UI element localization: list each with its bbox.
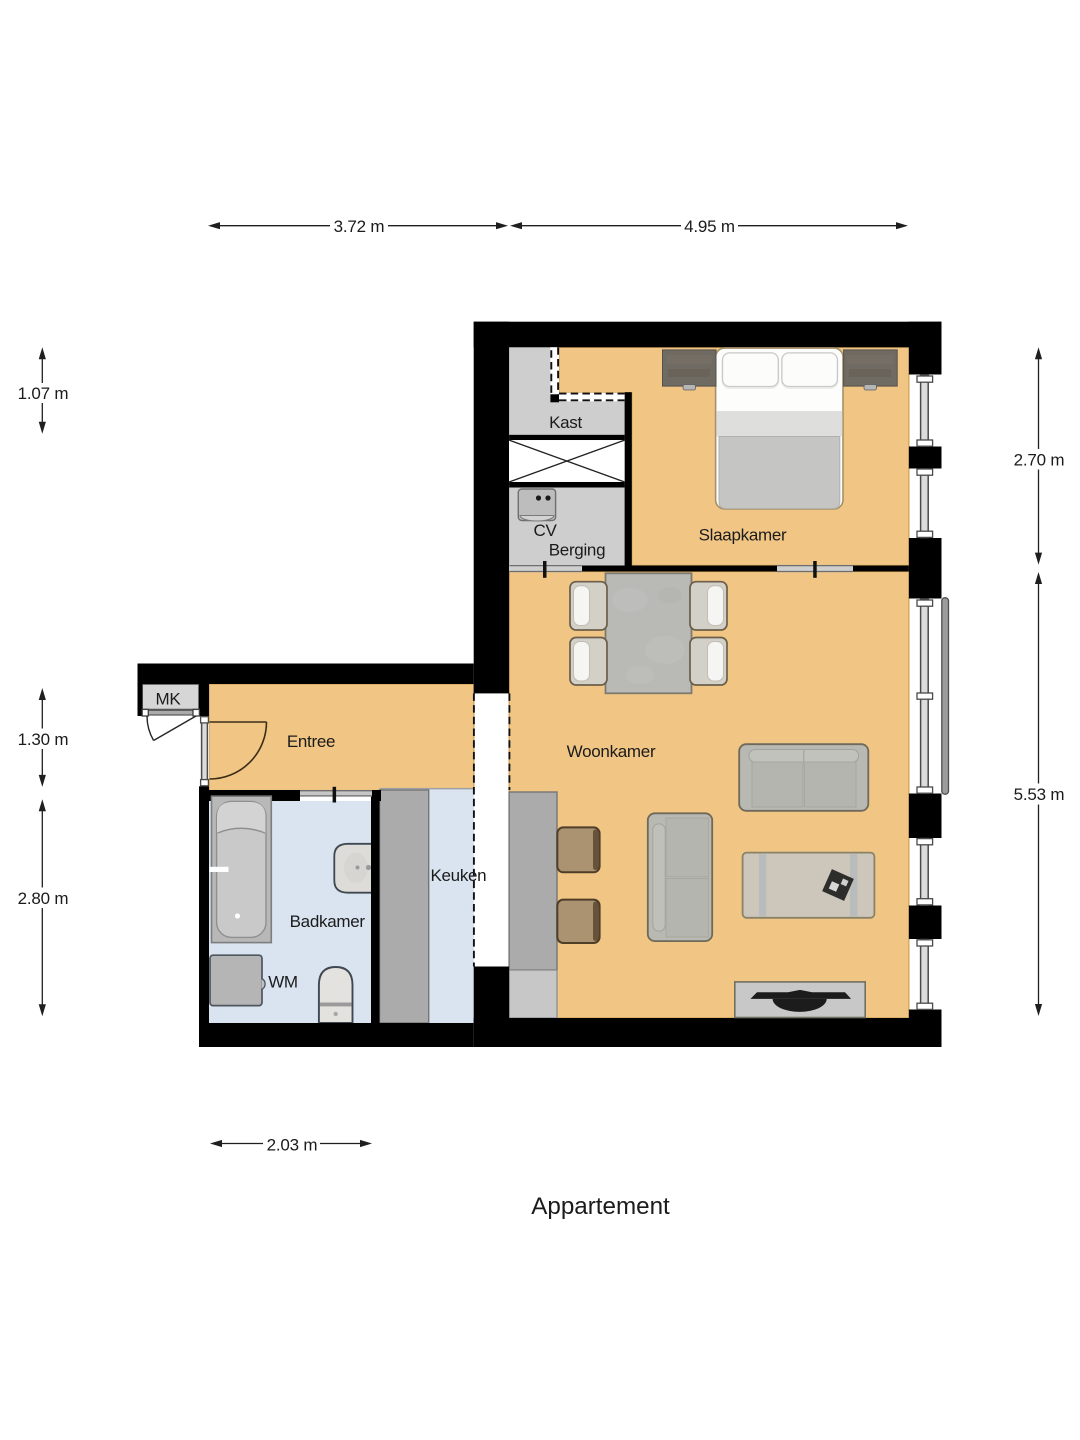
svg-text:Badkamer: Badkamer: [290, 912, 366, 931]
svg-text:Slaapkamer: Slaapkamer: [699, 526, 787, 545]
svg-text:4.95 m: 4.95 m: [684, 217, 735, 236]
svg-text:Entree: Entree: [287, 732, 335, 751]
svg-text:Kast: Kast: [549, 413, 582, 432]
svg-text:1.30 m: 1.30 m: [18, 730, 69, 749]
svg-text:2.80 m: 2.80 m: [18, 889, 69, 908]
svg-text:5.53 m: 5.53 m: [1014, 785, 1065, 804]
svg-text:MK: MK: [156, 690, 182, 709]
svg-text:Appartement: Appartement: [531, 1193, 670, 1220]
svg-text:CV: CV: [533, 521, 557, 540]
svg-text:1.07 m: 1.07 m: [18, 384, 69, 403]
svg-text:2.03 m: 2.03 m: [267, 1135, 318, 1154]
svg-text:Berging: Berging: [549, 541, 606, 560]
svg-text:2.70 m: 2.70 m: [1014, 450, 1065, 469]
svg-text:Woonkamer: Woonkamer: [567, 742, 656, 761]
svg-text:3.72 m: 3.72 m: [334, 217, 385, 236]
svg-text:WM: WM: [268, 973, 298, 992]
svg-text:Keuken: Keuken: [430, 866, 486, 885]
